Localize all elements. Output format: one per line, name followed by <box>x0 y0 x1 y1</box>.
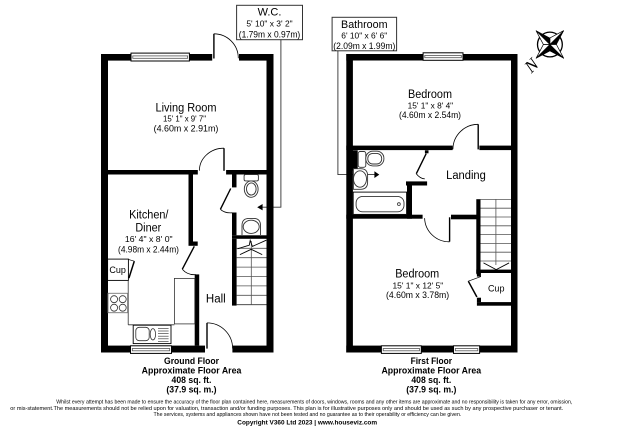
svg-text:W.C.: W.C. <box>258 6 282 18</box>
svg-text:15' 1" x 12' 5": 15' 1" x 12' 5" <box>393 281 444 291</box>
svg-text:Cup: Cup <box>109 265 126 275</box>
svg-text:5' 10" x 3' 2": 5' 10" x 3' 2" <box>246 18 292 28</box>
svg-text:First Floor: First Floor <box>411 356 453 366</box>
svg-text:408 sq. ft.: 408 sq. ft. <box>411 375 451 385</box>
svg-text:Whilst every attempt has been: Whilst every attempt has been made to en… <box>56 400 572 406</box>
svg-text:(4.60m x 3.78m): (4.60m x 3.78m) <box>386 290 449 300</box>
svg-text:or mis-statement.The measureme: or mis-statement.The measurements should… <box>10 406 563 412</box>
svg-text:Ground Floor: Ground Floor <box>164 356 219 366</box>
svg-text:15' 1" x 9' 7": 15' 1" x 9' 7" <box>163 114 206 124</box>
svg-text:6' 10" x 6' 6": 6' 10" x 6' 6" <box>341 30 387 40</box>
svg-text:Copyright V360 Ltd 2023 | www.: Copyright V360 Ltd 2023 | www.houseviz.c… <box>237 420 377 427</box>
svg-text:Living Room: Living Room <box>156 102 217 114</box>
svg-text:Landing: Landing <box>446 170 486 182</box>
svg-text:(4.60m x 2.54m): (4.60m x 2.54m) <box>399 110 461 120</box>
svg-text:Diner: Diner <box>135 223 161 235</box>
svg-text:(1.79m x 0.97m): (1.79m x 0.97m) <box>239 29 301 39</box>
svg-text:408 sq. ft.: 408 sq. ft. <box>172 375 212 385</box>
svg-text:The services, systems and appl: The services, systems and appliances sho… <box>154 412 462 418</box>
svg-text:Kitchen/: Kitchen/ <box>129 209 169 221</box>
svg-text:(4.98m x 2.44m): (4.98m x 2.44m) <box>118 244 179 254</box>
svg-text:(4.60m x 2.91m): (4.60m x 2.91m) <box>154 124 219 134</box>
svg-text:(37.9 sq. m.): (37.9 sq. m.) <box>166 384 216 394</box>
svg-text:Bedroom: Bedroom <box>408 89 452 101</box>
svg-text:(2.09m x 1.99m): (2.09m x 1.99m) <box>333 41 395 51</box>
svg-text:Bedroom: Bedroom <box>395 268 439 280</box>
svg-text:16' 4" x 8' 0": 16' 4" x 8' 0" <box>125 234 173 244</box>
svg-text:(37.9 sq. m.): (37.9 sq. m.) <box>406 384 456 394</box>
svg-text:Cup: Cup <box>488 283 505 293</box>
svg-text:Bathroom: Bathroom <box>341 19 388 31</box>
svg-text:Hall: Hall <box>206 294 226 306</box>
svg-text:15' 1" x 8' 4": 15' 1" x 8' 4" <box>408 100 454 110</box>
